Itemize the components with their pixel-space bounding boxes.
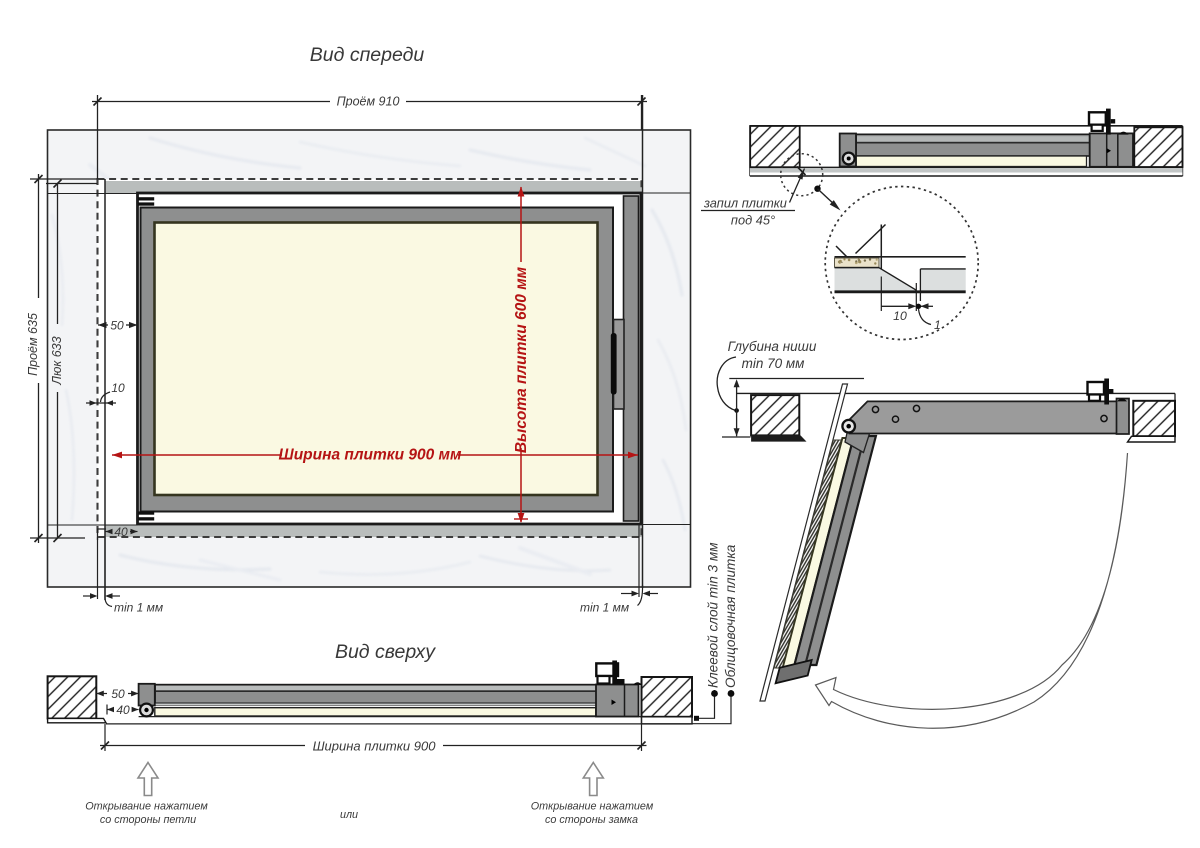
svg-text:min 70 мм: min 70 мм bbox=[742, 356, 805, 371]
svg-text:со стороны замка: со стороны замка bbox=[545, 814, 638, 826]
svg-text:Облицовочная плитка: Облицовочная плитка bbox=[723, 544, 738, 688]
svg-text:запил плитки: запил плитки bbox=[703, 196, 787, 211]
svg-text:1: 1 bbox=[934, 318, 941, 332]
svg-text:Открывание нажатием: Открывание нажатием bbox=[531, 801, 654, 813]
svg-text:Ширина плитки 900 мм: Ширина плитки 900 мм bbox=[279, 447, 462, 464]
svg-text:Проём 910: Проём 910 bbox=[337, 95, 400, 109]
svg-text:min 1 мм: min 1 мм bbox=[114, 601, 163, 615]
svg-text:Открывание нажатием: Открывание нажатием bbox=[85, 801, 208, 813]
svg-text:40: 40 bbox=[114, 525, 128, 539]
svg-text:Проём 635: Проём 635 bbox=[26, 313, 40, 376]
svg-text:Ширина плитки 900: Ширина плитки 900 bbox=[313, 739, 437, 754]
svg-text:Люк 633: Люк 633 bbox=[50, 336, 64, 385]
svg-text:Высота плитки 600 мм: Высота плитки 600 мм bbox=[513, 266, 530, 453]
svg-text:Вид спереди: Вид спереди bbox=[310, 44, 425, 66]
svg-text:min 1 мм: min 1 мм bbox=[580, 601, 629, 615]
svg-text:40: 40 bbox=[116, 703, 130, 717]
svg-text:50: 50 bbox=[110, 319, 124, 333]
svg-text:или: или bbox=[340, 809, 358, 821]
svg-text:10: 10 bbox=[111, 381, 125, 395]
svg-text:50: 50 bbox=[111, 687, 125, 701]
svg-text:Вид сверху: Вид сверху bbox=[335, 641, 436, 663]
svg-text:10: 10 bbox=[893, 309, 907, 323]
svg-text:под 45°: под 45° bbox=[731, 213, 775, 228]
svg-text:со стороны петли: со стороны петли bbox=[100, 814, 196, 826]
svg-text:Клеевой слой min 3 мм: Клеевой слой min 3 мм bbox=[706, 542, 721, 688]
svg-text:Глубина ниши: Глубина ниши bbox=[728, 339, 817, 354]
